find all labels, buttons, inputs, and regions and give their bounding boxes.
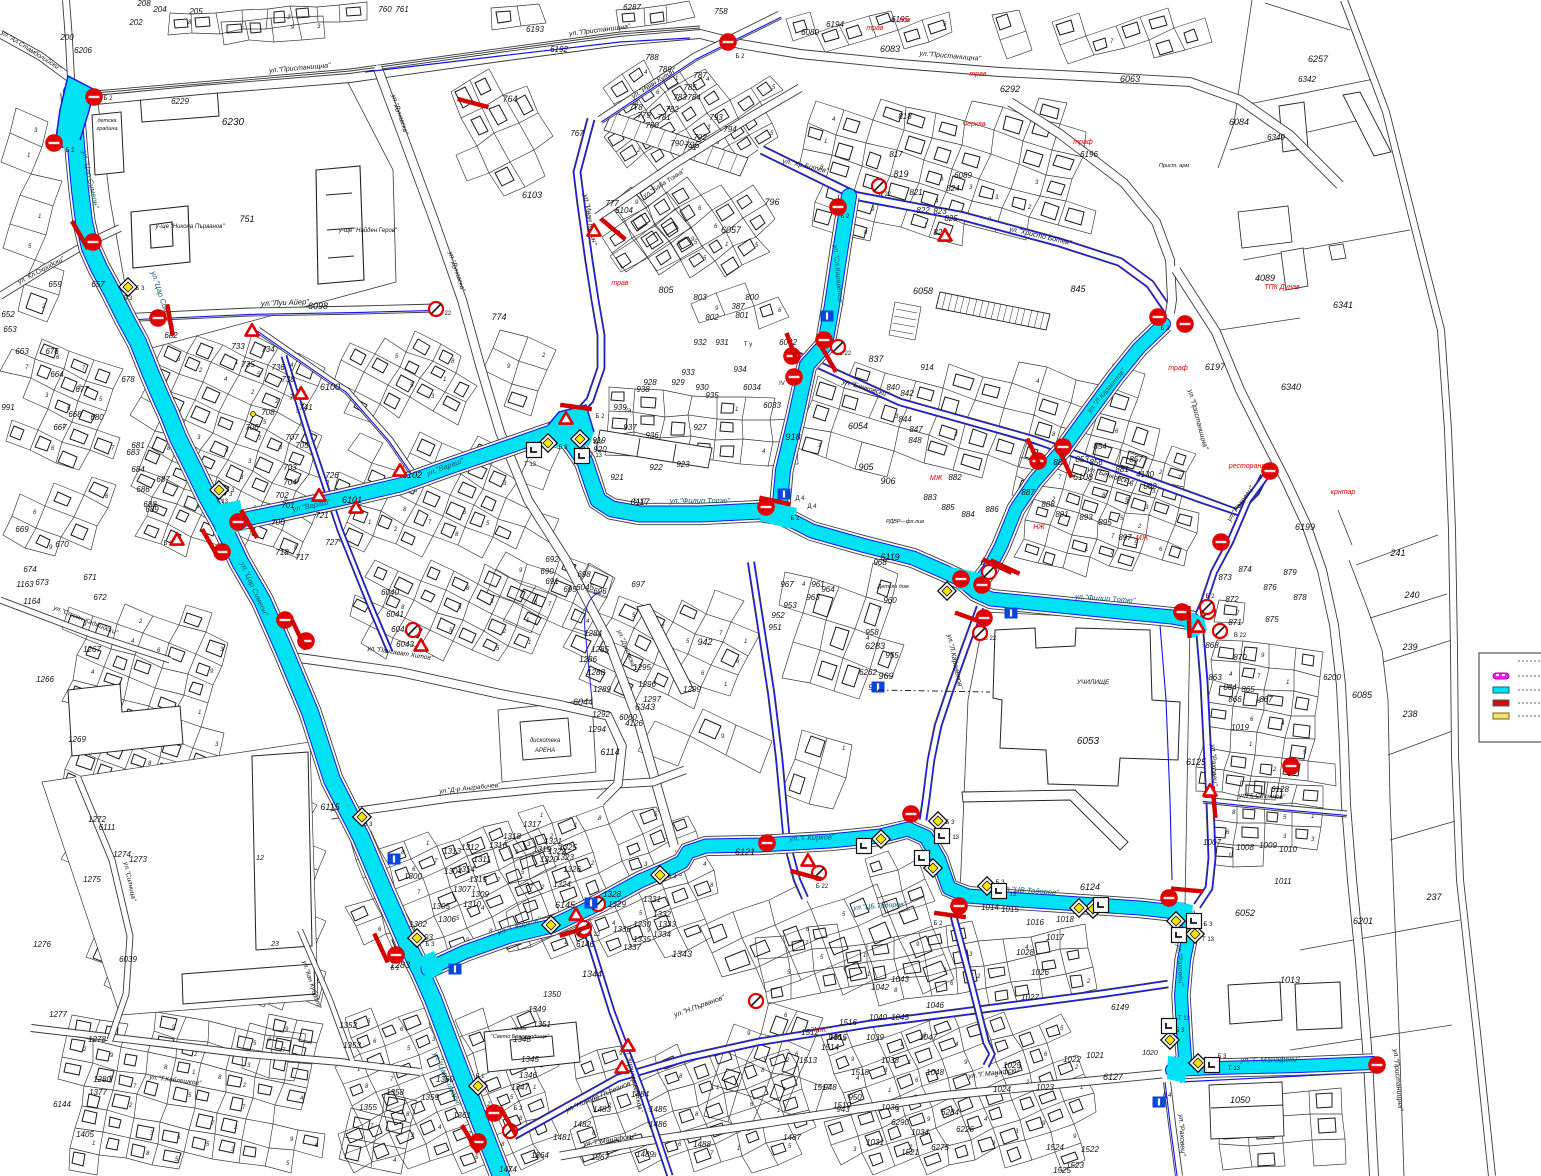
svg-text:761: 761: [395, 5, 408, 14]
svg-text:1486: 1486: [649, 1120, 667, 1129]
svg-text:4089: 4089: [1255, 273, 1275, 283]
svg-text:2: 2: [128, 1103, 133, 1109]
svg-text:1285: 1285: [591, 645, 609, 654]
svg-text:854: 854: [1093, 442, 1107, 451]
svg-text:702: 702: [275, 491, 289, 500]
svg-text:1345: 1345: [521, 1055, 539, 1064]
svg-text:6197: 6197: [1205, 362, 1226, 372]
svg-text:821: 821: [909, 188, 922, 197]
svg-text:6149: 6149: [1111, 1003, 1129, 1012]
svg-text:875: 875: [1265, 615, 1279, 624]
svg-text:718: 718: [275, 548, 289, 557]
svg-text:2: 2: [82, 1047, 87, 1053]
svg-text:1: 1: [443, 377, 446, 383]
svg-text:741: 741: [299, 403, 312, 412]
svg-text:668: 668: [68, 410, 82, 419]
svg-text:1332: 1332: [653, 910, 671, 919]
svg-text:6124: 6124: [1080, 882, 1100, 892]
svg-text:918: 918: [785, 432, 800, 442]
svg-text:872: 872: [1225, 595, 1239, 604]
svg-text:921: 921: [610, 473, 623, 482]
svg-text:1: 1: [867, 972, 870, 978]
svg-text:6127: 6127: [1103, 1072, 1124, 1082]
svg-text:678: 678: [121, 375, 135, 384]
svg-text:2: 2: [1137, 524, 1142, 530]
svg-text:733: 733: [231, 342, 245, 351]
svg-text:1350: 1350: [543, 990, 561, 999]
svg-text:Д 4: Д 4: [795, 496, 805, 502]
svg-text:927: 927: [693, 423, 707, 432]
svg-text:686: 686: [136, 485, 150, 494]
svg-text:1: 1: [533, 1085, 536, 1091]
svg-text:1474: 1474: [499, 1165, 517, 1174]
svg-text:Б 2: Б 2: [1161, 326, 1171, 332]
svg-text:В 22: В 22: [1234, 633, 1247, 639]
svg-text:6041: 6041: [386, 610, 404, 619]
svg-text:657: 657: [91, 280, 105, 289]
svg-text:726: 726: [325, 471, 339, 480]
svg-text:детска: детска: [98, 118, 117, 124]
svg-text:1273: 1273: [129, 855, 147, 864]
svg-text:864: 864: [1223, 683, 1237, 692]
svg-text:783: 783: [673, 93, 687, 102]
svg-text:780: 780: [645, 121, 659, 130]
svg-text:6349: 6349: [1267, 133, 1285, 142]
svg-text:1: 1: [675, 76, 678, 82]
svg-text:937: 937: [623, 423, 637, 432]
svg-text:1: 1: [1228, 853, 1231, 859]
svg-text:НЖ: НЖ: [1033, 524, 1045, 531]
svg-text:1: 1: [842, 746, 845, 752]
svg-text:964: 964: [821, 585, 835, 594]
svg-text:6196: 6196: [1080, 150, 1098, 159]
svg-text:1047: 1047: [919, 1033, 937, 1042]
svg-text:Б 3: Б 3: [1204, 922, 1214, 928]
svg-text:2: 2: [393, 527, 398, 533]
svg-text:1305: 1305: [432, 902, 450, 911]
svg-text:960: 960: [883, 596, 897, 605]
svg-text:МЖ: МЖ: [930, 475, 943, 482]
svg-text:692: 692: [545, 555, 559, 564]
svg-text:1313: 1313: [443, 847, 461, 856]
svg-text:1325: 1325: [559, 843, 577, 852]
svg-text:ул."Г.Кирков": ул."Г.Кирков": [788, 832, 835, 843]
svg-text:674: 674: [23, 565, 37, 574]
svg-text:785: 785: [683, 83, 697, 92]
svg-text:774: 774: [491, 312, 506, 322]
svg-text:1: 1: [888, 1088, 891, 1094]
svg-text:2: 2: [1272, 767, 1277, 773]
svg-text:4126: 4126: [625, 719, 643, 728]
svg-text:1163: 1163: [16, 580, 34, 589]
svg-text:1367: 1367: [591, 1153, 609, 1162]
svg-text:2: 2: [233, 1125, 238, 1131]
svg-text:6194: 6194: [826, 20, 844, 29]
svg-text:6084: 6084: [1229, 117, 1249, 127]
svg-text:6054: 6054: [848, 421, 868, 431]
svg-text:689: 689: [145, 505, 159, 514]
svg-text:673: 673: [35, 578, 49, 587]
svg-text:205: 205: [188, 7, 203, 16]
svg-text:1331: 1331: [643, 895, 661, 904]
svg-text:1343: 1343: [672, 949, 692, 959]
svg-text:1: 1: [235, 360, 238, 366]
svg-text:963: 963: [806, 593, 820, 602]
svg-text:2: 2: [541, 353, 546, 359]
svg-text:1015: 1015: [1001, 905, 1019, 914]
svg-text:6201: 6201: [1353, 916, 1373, 926]
svg-text:663: 663: [15, 347, 29, 356]
svg-text:1039: 1039: [866, 1033, 884, 1042]
svg-text:951: 951: [768, 623, 781, 632]
svg-text:6275: 6275: [931, 1143, 949, 1152]
svg-text:870: 870: [1233, 653, 1247, 662]
svg-text:1294: 1294: [588, 725, 606, 734]
svg-text:6034: 6034: [743, 383, 761, 392]
svg-text:778: 778: [629, 103, 643, 112]
svg-text:1364: 1364: [531, 1151, 549, 1160]
svg-text:787: 787: [693, 71, 707, 80]
svg-text:2а: 2а: [625, 408, 632, 414]
svg-text:857: 857: [1129, 455, 1143, 464]
svg-text:1: 1: [27, 153, 30, 159]
svg-text:ул."Луи Айер": ул."Луи Айер": [260, 297, 310, 308]
svg-text:1034: 1034: [911, 1128, 929, 1137]
svg-text:825: 825: [944, 214, 958, 223]
svg-text:1349: 1349: [528, 1005, 546, 1014]
svg-text:873: 873: [1218, 573, 1232, 582]
svg-text:1: 1: [574, 823, 577, 829]
svg-text:837: 837: [868, 354, 884, 364]
svg-text:1018: 1018: [1056, 915, 1074, 924]
svg-text:687: 687: [156, 475, 170, 484]
svg-text:848: 848: [908, 436, 922, 445]
svg-text:1314: 1314: [457, 865, 475, 874]
svg-text:1377: 1377: [89, 1088, 107, 1097]
svg-text:1026: 1026: [1031, 968, 1049, 977]
svg-text:1300: 1300: [404, 872, 422, 881]
svg-text:1043: 1043: [891, 975, 909, 984]
svg-text:1: 1: [426, 841, 429, 847]
svg-text:2: 2: [502, 629, 507, 635]
svg-text:ТПК Дунав: ТПК Дунав: [1264, 284, 1300, 291]
svg-text:6226: 6226: [956, 1125, 974, 1134]
svg-text:ул."Филип Тотю": ул."Филип Тотю": [669, 496, 731, 505]
svg-text:1292: 1292: [592, 710, 610, 719]
svg-text:6200: 6200: [1323, 673, 1341, 682]
svg-text:734: 734: [261, 345, 275, 354]
svg-text:2: 2: [410, 1133, 415, 1139]
svg-text:696: 696: [593, 587, 607, 596]
svg-text:701: 701: [281, 501, 294, 510]
svg-text:868: 868: [1205, 641, 1219, 650]
svg-text:760: 760: [378, 5, 392, 14]
svg-text:840: 840: [886, 383, 900, 392]
svg-text:240: 240: [1403, 590, 1419, 600]
svg-text:845: 845: [1070, 284, 1086, 294]
svg-text:2: 2: [193, 1052, 198, 1058]
svg-text:ул."Г. Манафски": ул."Г. Манафски": [1239, 1054, 1300, 1064]
svg-text:1312: 1312: [461, 843, 479, 852]
svg-text:677: 677: [75, 385, 89, 394]
svg-text:6287: 6287: [623, 3, 641, 12]
svg-text:у-ще "Найден Геров": у-ще "Найден Геров": [338, 227, 398, 234]
svg-text:Б 2: Б 2: [841, 214, 851, 220]
svg-text:1361: 1361: [453, 1111, 471, 1120]
svg-text:УЧИЛИЩЕ: УЧИЛИЩЕ: [1076, 679, 1110, 686]
svg-text:667: 667: [53, 423, 67, 432]
svg-text:градина: градина: [96, 126, 117, 132]
svg-text:1050: 1050: [1230, 1095, 1250, 1105]
svg-text:1: 1: [924, 223, 927, 229]
svg-text:208: 208: [136, 0, 151, 8]
svg-text:672: 672: [93, 593, 107, 602]
svg-text:АРЕНА: АРЕНА: [534, 748, 555, 754]
svg-text:867: 867: [1259, 695, 1273, 704]
svg-text:IV: IV: [779, 381, 785, 387]
svg-text:1: 1: [735, 407, 738, 413]
svg-text:929: 929: [671, 378, 685, 387]
svg-text:1020: 1020: [1142, 1050, 1158, 1057]
svg-text:1: 1: [368, 520, 371, 526]
svg-text:6146: 6146: [576, 940, 594, 949]
svg-text:6098: 6098: [308, 301, 328, 311]
svg-text:1028: 1028: [1016, 948, 1034, 957]
svg-text:882: 882: [948, 473, 962, 482]
svg-text:6262: 6262: [859, 668, 877, 677]
svg-text:1487: 1487: [783, 1133, 801, 1142]
svg-text:708: 708: [261, 408, 275, 417]
svg-text:Б 2: Б 2: [66, 148, 76, 154]
svg-text:2: 2: [267, 1037, 272, 1043]
svg-text:886: 886: [985, 505, 999, 514]
svg-text:200: 200: [59, 33, 74, 42]
svg-text:23: 23: [270, 941, 279, 948]
svg-text:6199: 6199: [1295, 522, 1315, 532]
svg-text:842: 842: [900, 389, 914, 398]
svg-text:6052: 6052: [1235, 908, 1255, 918]
svg-text:705: 705: [295, 441, 309, 450]
svg-text:788: 788: [645, 53, 659, 62]
svg-text:1: 1: [38, 214, 41, 220]
svg-text:239: 239: [1401, 642, 1417, 652]
svg-text:1328: 1328: [603, 890, 621, 899]
svg-text:683: 683: [126, 448, 140, 457]
svg-text:6341: 6341: [1333, 300, 1353, 310]
svg-text:Т 13: Т 13: [524, 462, 537, 468]
svg-text:1021: 1021: [1086, 1051, 1104, 1060]
svg-text:6103: 6103: [522, 190, 542, 200]
svg-text:862: 862: [1143, 482, 1157, 491]
svg-text:2МЖ: 2МЖ: [809, 1027, 827, 1034]
svg-text:1525: 1525: [1053, 1166, 1071, 1175]
svg-text:1011: 1011: [1274, 877, 1291, 886]
svg-text:680: 680: [90, 413, 104, 422]
svg-text:храм: храм: [513, 1026, 527, 1032]
svg-text:1: 1: [737, 1146, 740, 1152]
svg-text:652: 652: [1, 310, 15, 319]
svg-text:874: 874: [1238, 565, 1252, 574]
svg-text:818: 818: [898, 112, 912, 121]
svg-text:Б 2: Б 2: [514, 1106, 524, 1112]
svg-text:6053: 6053: [1077, 736, 1100, 747]
svg-text:1524: 1524: [1046, 1143, 1064, 1152]
svg-text:6290: 6290: [891, 1118, 909, 1127]
svg-text:1309: 1309: [471, 890, 489, 899]
svg-text:844: 844: [898, 415, 912, 424]
svg-text:866: 866: [1228, 695, 1242, 704]
svg-text:1277: 1277: [49, 1010, 67, 1019]
svg-text:1: 1: [900, 1042, 903, 1048]
svg-text:РДВР—фл.лив: РДВР—фл.лив: [886, 519, 924, 525]
svg-text:2: 2: [138, 619, 143, 625]
svg-text:822: 822: [916, 206, 930, 215]
svg-text:6117: 6117: [634, 499, 648, 505]
svg-text:6114: 6114: [600, 747, 619, 757]
svg-text:721: 721: [315, 511, 328, 520]
svg-text:1485: 1485: [649, 1105, 667, 1114]
svg-text:1: 1: [863, 953, 866, 959]
svg-text:1295: 1295: [633, 663, 651, 672]
svg-text:1352: 1352: [339, 1021, 357, 1030]
svg-text:805: 805: [658, 285, 674, 295]
svg-text:1023: 1023: [1036, 1083, 1054, 1092]
svg-text:801: 801: [735, 311, 748, 320]
svg-text:Детски дом: Детски дом: [876, 584, 908, 590]
svg-text:784: 784: [687, 93, 701, 102]
svg-text:1266: 1266: [36, 675, 54, 684]
svg-text:6080: 6080: [801, 28, 819, 37]
svg-text:1: 1: [1249, 742, 1252, 748]
svg-text:Т 13: Т 13: [1228, 1066, 1241, 1072]
svg-text:1: 1: [540, 813, 543, 819]
svg-text:Б 3: Б 3: [124, 296, 134, 302]
svg-text:706: 706: [245, 423, 259, 432]
svg-text:1489: 1489: [636, 1150, 654, 1159]
svg-text:6206: 6206: [74, 46, 92, 55]
svg-text:траф: траф: [1168, 365, 1188, 372]
svg-text:6058: 6058: [913, 286, 933, 296]
svg-text:936: 936: [645, 431, 659, 440]
svg-text:1296: 1296: [638, 680, 656, 689]
svg-text:6100: 6100: [320, 382, 340, 392]
svg-text:803: 803: [693, 293, 707, 302]
svg-text:2: 2: [976, 974, 981, 980]
svg-text:6063: 6063: [1120, 74, 1140, 84]
svg-text:1280: 1280: [93, 1075, 111, 1084]
svg-text:нов: нов: [899, 17, 911, 24]
svg-text:1276: 1276: [33, 940, 51, 949]
svg-text:387: 387: [731, 302, 745, 311]
svg-text:1: 1: [1286, 680, 1289, 686]
svg-text:6115: 6115: [320, 802, 340, 812]
svg-text:1299: 1299: [683, 685, 701, 694]
svg-text:6145: 6145: [555, 900, 576, 910]
svg-text:991: 991: [1, 403, 14, 412]
svg-text:888: 888: [1041, 500, 1055, 509]
svg-text:траф: траф: [1073, 139, 1093, 146]
svg-text:237: 237: [1425, 892, 1442, 902]
svg-text:1: 1: [564, 940, 567, 946]
svg-text:Б 3: Б 3: [559, 445, 569, 451]
svg-text:202: 202: [128, 18, 143, 27]
svg-text:1288: 1288: [587, 668, 605, 677]
svg-text:Т 13: Т 13: [216, 499, 229, 505]
svg-text:690: 690: [540, 567, 554, 576]
svg-text:1318: 1318: [503, 832, 521, 841]
svg-text:879: 879: [1283, 568, 1297, 577]
svg-text:2: 2: [1158, 470, 1163, 476]
svg-text:2: 2: [198, 368, 203, 374]
svg-text:1: 1: [1085, 547, 1088, 553]
svg-text:Т 13: Т 13: [1202, 937, 1215, 943]
svg-text:1484: 1484: [631, 1090, 649, 1099]
svg-text:847: 847: [909, 425, 923, 434]
svg-text:Прист. арм: Прист. арм: [1159, 163, 1189, 169]
svg-text:1348: 1348: [513, 1035, 531, 1044]
svg-text:1013: 1013: [1280, 975, 1300, 985]
svg-text:2: 2: [1027, 205, 1032, 211]
svg-text:878: 878: [1293, 593, 1307, 602]
svg-text:1517: 1517: [813, 1083, 831, 1092]
svg-text:895: 895: [1098, 518, 1112, 527]
svg-text:6057: 6057: [721, 225, 742, 235]
svg-text:856: 856: [1089, 458, 1103, 467]
svg-text:6193: 6193: [526, 25, 544, 34]
svg-text:6343: 6343: [635, 702, 655, 712]
svg-text:6192: 6192: [550, 45, 568, 54]
svg-text:1042: 1042: [871, 983, 889, 992]
svg-text:МЖ: МЖ: [1136, 535, 1149, 542]
svg-text:791: 791: [683, 143, 696, 152]
svg-text:865: 865: [1241, 685, 1255, 694]
svg-text:1024: 1024: [993, 1085, 1011, 1094]
svg-text:6083: 6083: [880, 44, 900, 54]
svg-text:935: 935: [705, 391, 719, 400]
svg-text:684: 684: [131, 465, 145, 474]
svg-text:736: 736: [271, 363, 285, 372]
svg-text:6085: 6085: [1352, 690, 1373, 700]
svg-text:Т у: Т у: [744, 342, 752, 348]
svg-text:779: 779: [637, 111, 651, 120]
svg-text:1046: 1046: [926, 1001, 944, 1010]
svg-text:1351: 1351: [533, 1020, 551, 1029]
svg-text:1027: 1027: [1021, 993, 1039, 1002]
svg-text:6283: 6283: [865, 641, 885, 651]
svg-text:1286: 1286: [579, 655, 597, 664]
svg-text:717: 717: [295, 553, 309, 562]
svg-text:1516: 1516: [839, 1018, 857, 1027]
svg-text:884: 884: [961, 510, 975, 519]
svg-text:1359: 1359: [421, 1093, 439, 1102]
svg-text:933: 933: [681, 368, 695, 377]
svg-text:трав: трав: [611, 280, 629, 287]
svg-text:1: 1: [725, 242, 728, 248]
svg-text:700: 700: [271, 518, 285, 527]
svg-text:1010: 1010: [1279, 845, 1297, 854]
svg-text:704: 704: [283, 478, 297, 487]
svg-text:Т 13: Т 13: [590, 453, 603, 459]
svg-text:1347: 1347: [511, 1083, 529, 1092]
svg-text:914: 914: [920, 363, 934, 372]
svg-text:932: 932: [693, 338, 707, 347]
svg-text:969: 969: [878, 671, 893, 681]
svg-text:893: 893: [1079, 513, 1093, 522]
svg-text:6111: 6111: [99, 823, 116, 832]
svg-text:691: 691: [545, 577, 558, 586]
svg-text:1330: 1330: [633, 920, 651, 929]
svg-text:6229: 6229: [171, 97, 189, 106]
